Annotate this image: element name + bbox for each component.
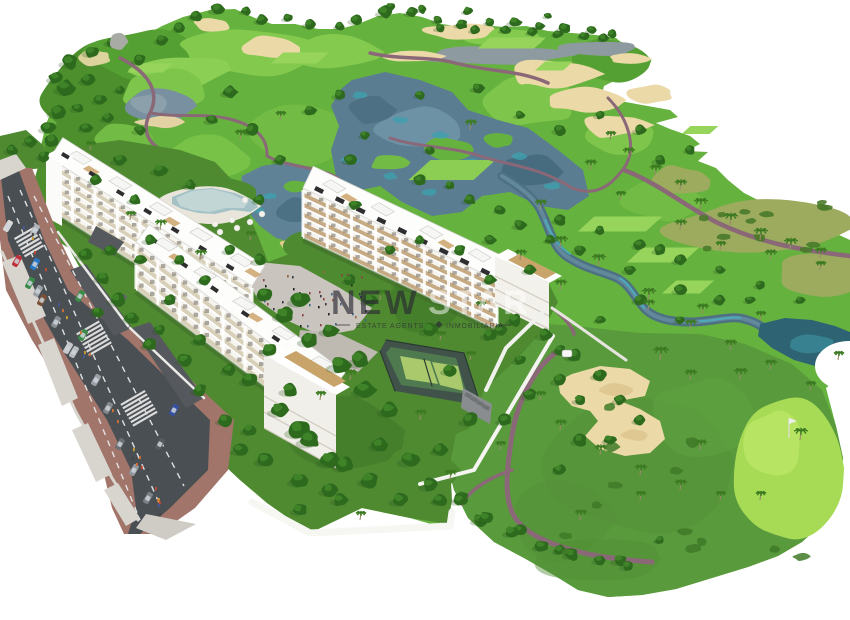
svg-text:INMOBILIARIA: INMOBILIARIA: [446, 323, 504, 330]
svg-text:ESTATE AGENTS: ESTATE AGENTS: [356, 323, 424, 330]
svg-text:NEW: NEW: [331, 284, 420, 322]
svg-text:STAR: STAR: [428, 284, 531, 322]
